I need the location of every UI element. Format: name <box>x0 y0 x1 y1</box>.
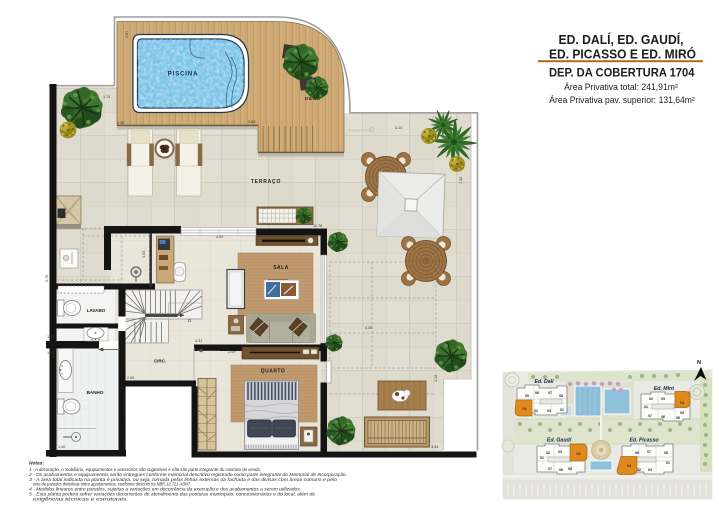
svg-text:2.05: 2.05 <box>127 376 134 380</box>
svg-text:Notas:: Notas: <box>29 461 44 467</box>
svg-text:DEP. DA COBERTURA 1704: DEP. DA COBERTURA 1704 <box>549 65 695 79</box>
svg-text:BANHO: BANHO <box>87 390 104 395</box>
svg-text:02: 02 <box>546 451 550 455</box>
svg-text:3.10: 3.10 <box>395 126 402 130</box>
svg-text:SALA: SALA <box>273 265 289 271</box>
svg-text:4.31: 4.31 <box>195 339 202 343</box>
svg-text:06: 06 <box>661 415 665 419</box>
svg-text:05: 05 <box>680 411 684 415</box>
svg-text:Ed. Picasso: Ed. Picasso <box>629 438 658 444</box>
svg-text:CIRC.: CIRC. <box>154 359 167 364</box>
svg-text:QUARTO: QUARTO <box>261 369 286 375</box>
svg-text:4.53: 4.53 <box>142 251 146 258</box>
svg-text:1.70: 1.70 <box>47 351 54 355</box>
svg-text:01: 01 <box>644 405 648 409</box>
svg-text:05: 05 <box>568 467 572 471</box>
svg-text:1.45: 1.45 <box>47 335 54 339</box>
svg-text:11.78: 11.78 <box>313 224 322 228</box>
svg-text:0.30: 0.30 <box>117 121 124 125</box>
svg-text:08: 08 <box>559 394 563 398</box>
svg-text:3.34: 3.34 <box>431 445 438 449</box>
svg-text:Ed. Dalí: Ed. Dalí <box>534 379 554 385</box>
svg-text:1.74: 1.74 <box>103 95 110 99</box>
svg-text:07: 07 <box>647 450 651 454</box>
svg-text:02: 02 <box>649 397 653 401</box>
svg-text:4.00: 4.00 <box>216 235 223 239</box>
svg-text:06: 06 <box>635 451 639 455</box>
svg-text:Rodrigo Grecco: Rodrigo Grecco <box>348 129 372 133</box>
svg-text:Área Privativa pav. superior:: Área Privativa pav. superior: 131,64m² <box>549 95 695 105</box>
svg-text:03: 03 <box>558 450 562 454</box>
svg-text:05: 05 <box>525 394 529 398</box>
svg-text:01: 01 <box>666 461 670 465</box>
svg-text:2.09: 2.09 <box>228 350 235 354</box>
svg-text:03: 03 <box>661 397 665 401</box>
svg-text:06: 06 <box>676 416 680 420</box>
svg-text:07: 07 <box>548 467 552 471</box>
svg-text:1.40: 1.40 <box>58 445 65 449</box>
svg-text:4.16: 4.16 <box>434 375 438 382</box>
svg-text:03: 03 <box>648 468 652 472</box>
svg-text:2.86: 2.86 <box>248 120 255 124</box>
svg-text:Área Privativa total: 241,91m²: Área Privativa total: 241,91m² <box>564 82 678 92</box>
svg-text:08: 08 <box>664 451 668 455</box>
svg-text:4.05: 4.05 <box>365 326 372 330</box>
svg-text:ED. PICASSO E ED. MIRÓ: ED. PICASSO E ED. MIRÓ <box>549 46 696 61</box>
svg-text:Ed. Gaudí: Ed. Gaudí <box>547 438 572 444</box>
svg-text:PISCINA: PISCINA <box>168 71 199 78</box>
svg-text:01: 01 <box>540 456 544 460</box>
svg-text:06: 06 <box>559 468 563 472</box>
svg-text:Ed. Miró: Ed. Miró <box>654 386 674 392</box>
svg-text:N: N <box>697 360 701 366</box>
svg-text:2.87: 2.87 <box>125 31 129 38</box>
svg-text:TERRAÇO: TERRAÇO <box>251 179 281 185</box>
svg-text:01: 01 <box>560 408 564 412</box>
svg-text:2.70: 2.70 <box>45 275 49 282</box>
svg-text:07: 07 <box>548 391 552 395</box>
svg-text:03: 03 <box>547 409 551 413</box>
svg-text:02: 02 <box>637 468 641 472</box>
svg-text:7.32: 7.32 <box>459 177 463 184</box>
svg-text:07: 07 <box>648 414 652 418</box>
svg-text:02: 02 <box>534 409 538 413</box>
svg-text:exigências técnicas e estrutur: exigências técnicas e estruturais. <box>33 497 128 502</box>
svg-text:06: 06 <box>535 391 539 395</box>
svg-text:ED. DALÍ, ED. GAUDÍ,: ED. DALÍ, ED. GAUDÍ, <box>559 32 684 47</box>
svg-text:LAVABO: LAVABO <box>87 308 106 313</box>
